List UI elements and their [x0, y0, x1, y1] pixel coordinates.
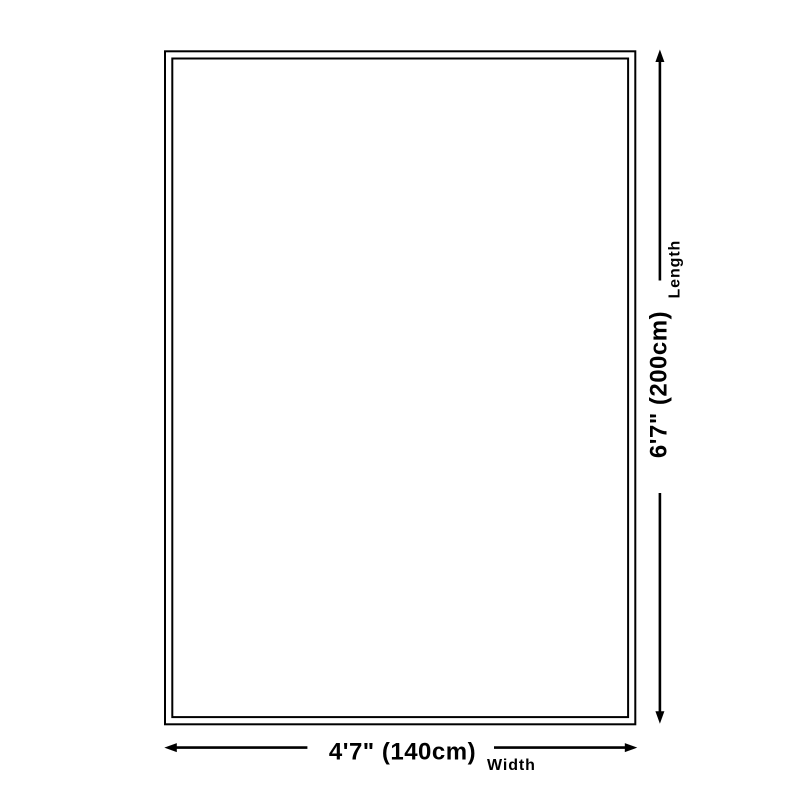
svg-text:6'7" (200cm): 6'7" (200cm) — [646, 311, 673, 458]
svg-text:Length: Length — [667, 240, 684, 299]
svg-text:Width: Width — [487, 757, 536, 774]
svg-text:4'7" (140cm): 4'7" (140cm) — [329, 738, 476, 765]
